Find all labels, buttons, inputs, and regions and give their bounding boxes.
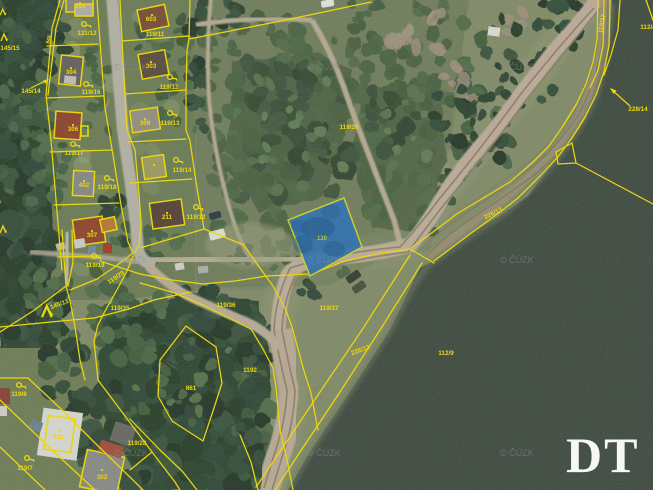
svg-text:DT: DT: [566, 427, 639, 483]
